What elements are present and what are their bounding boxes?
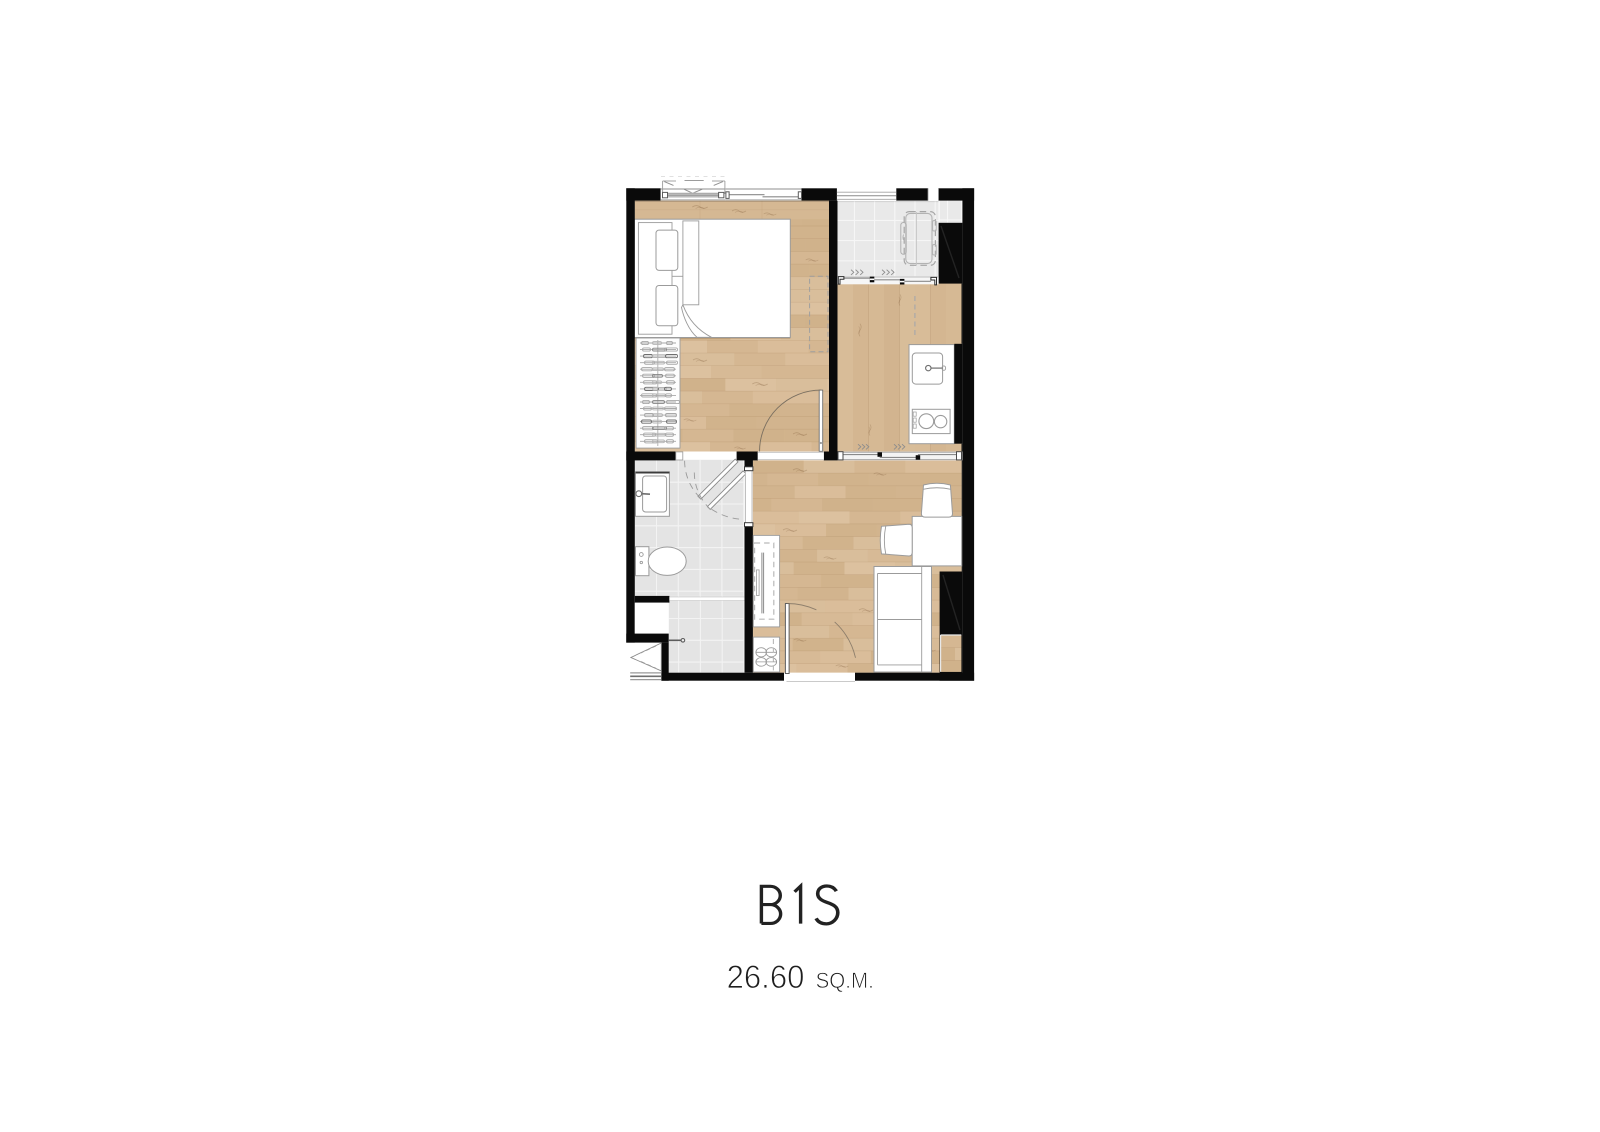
svg-text:26.60: 26.60 [727, 959, 805, 995]
svg-text:SQ.M.: SQ.M. [816, 968, 874, 993]
